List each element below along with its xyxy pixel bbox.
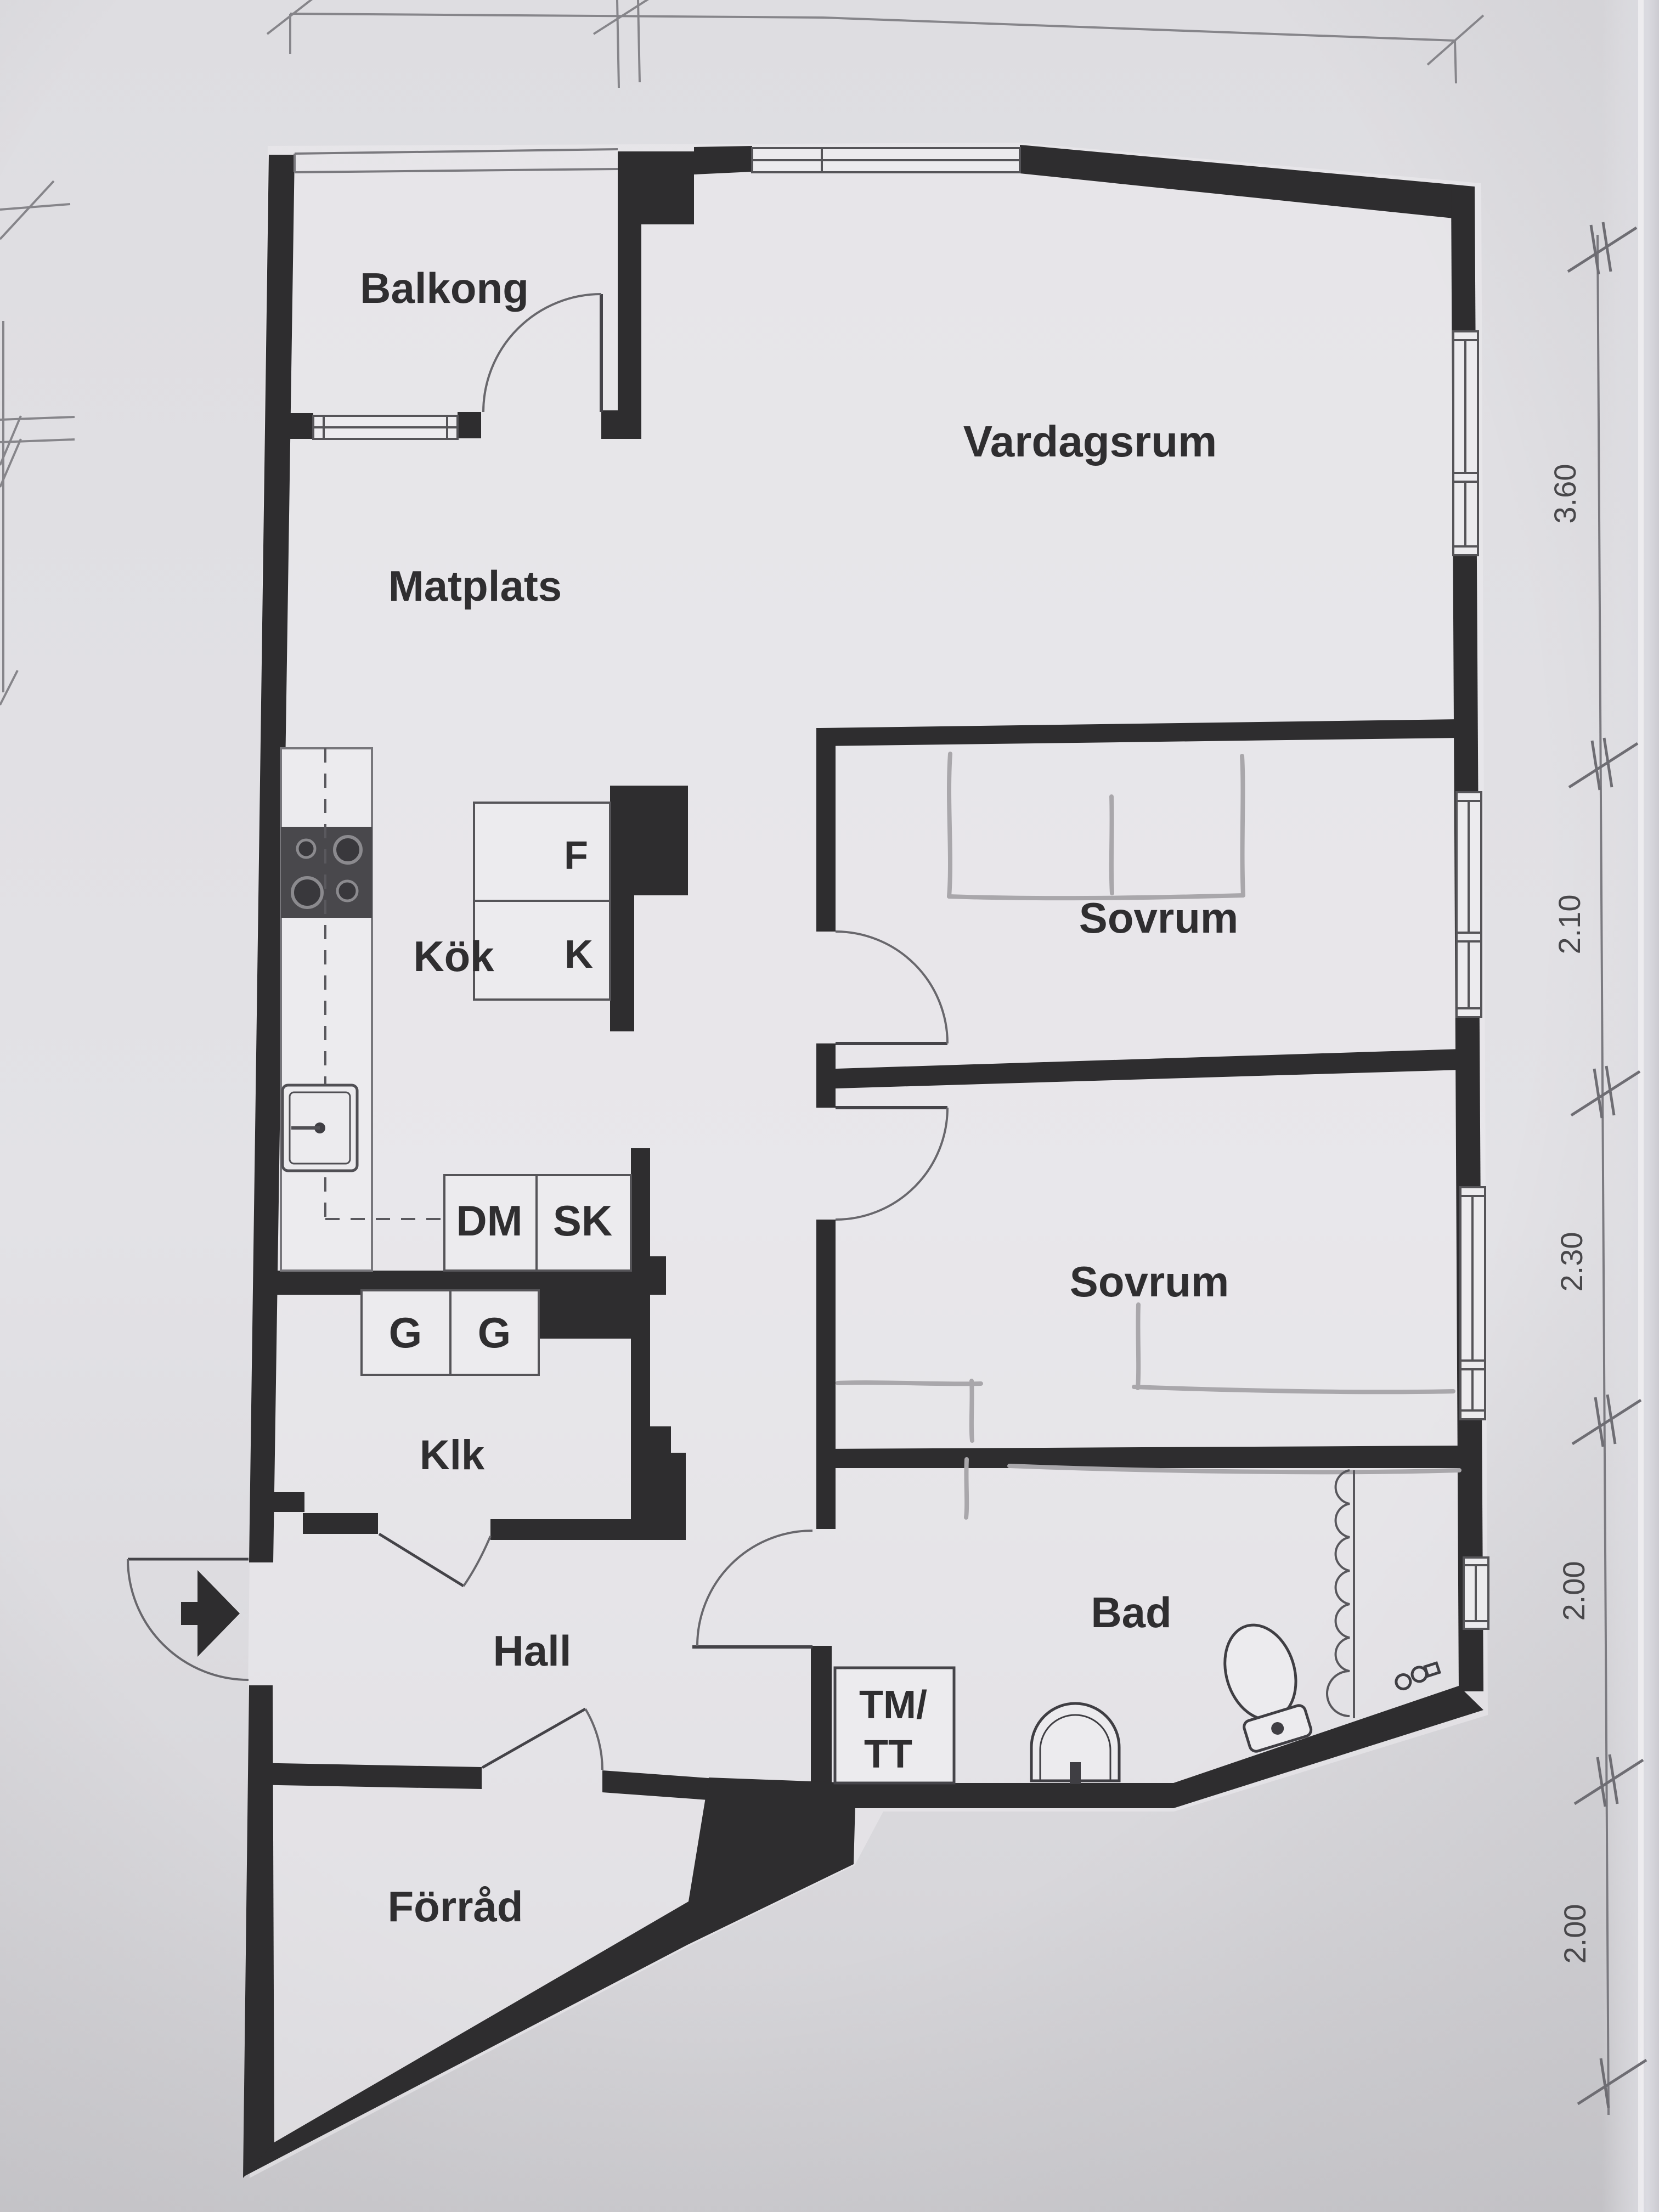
svg-text:3.60: 3.60 [1548, 464, 1582, 524]
svg-text:SK: SK [553, 1197, 612, 1245]
svg-text:Matplats: Matplats [388, 562, 562, 610]
svg-text:Vardagsrum: Vardagsrum [963, 417, 1217, 466]
svg-text:G: G [389, 1308, 422, 1357]
svg-text:G: G [478, 1308, 511, 1357]
svg-text:DM: DM [456, 1197, 522, 1245]
svg-text:2.00: 2.00 [1556, 1561, 1591, 1621]
svg-text:Klk: Klk [420, 1432, 485, 1479]
svg-text:Hall: Hall [493, 1627, 571, 1675]
svg-text:Sovrum: Sovrum [1070, 1257, 1229, 1306]
svg-text:Bad: Bad [1091, 1588, 1171, 1637]
svg-text:Balkong: Balkong [360, 264, 529, 312]
svg-text:K: K [565, 933, 593, 977]
svg-text:Förråd: Förråd [387, 1882, 523, 1931]
svg-text:TM/: TM/ [859, 1683, 927, 1727]
svg-text:F: F [564, 834, 588, 878]
svg-text:Sovrum: Sovrum [1079, 894, 1238, 942]
svg-text:Kök: Kök [413, 932, 494, 980]
svg-text:TT: TT [864, 1733, 912, 1776]
svg-text:2.00: 2.00 [1558, 1904, 1592, 1964]
svg-text:2.30: 2.30 [1554, 1232, 1589, 1292]
svg-text:2.10: 2.10 [1552, 895, 1587, 955]
